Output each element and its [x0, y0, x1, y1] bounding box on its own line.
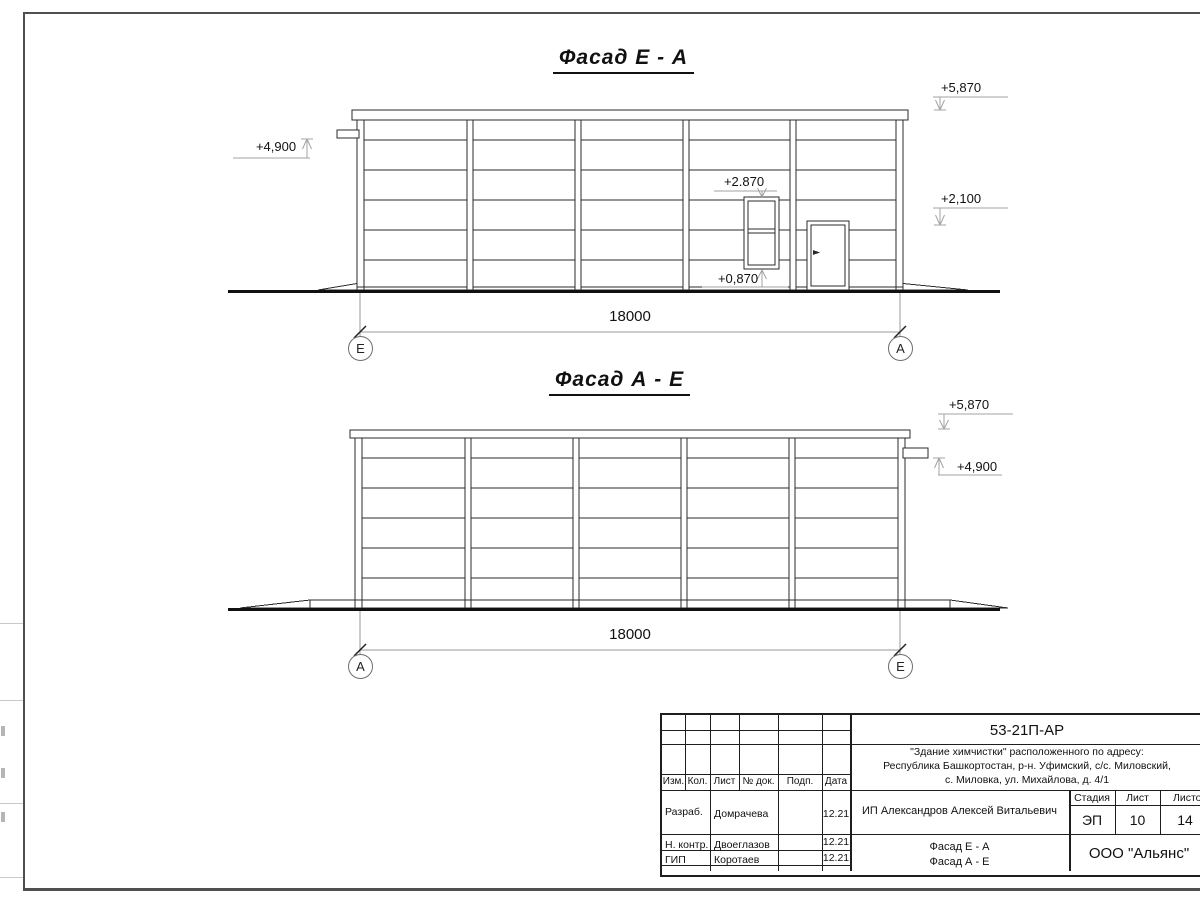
facade-ae-title: Фасад А - Е	[549, 368, 690, 396]
tb-name-ncontrol: Двоеглазов	[714, 839, 770, 851]
tb-address-line3: с. Миловка, ул. Михайлова, д. 4/1	[850, 774, 1200, 786]
title-block: Изм. Кол. Лист № док. Подп. Дата Разраб.…	[660, 713, 1200, 877]
dimension-label-facade-ea: 18000	[580, 308, 680, 325]
tb-col-list: Лист	[710, 776, 739, 787]
tb-role-developer: Разраб.	[665, 806, 703, 818]
tb-col-podp: Подп.	[778, 776, 822, 787]
tb-total-value: 14	[1160, 812, 1200, 828]
tb-address-line2: Республика Башкортостан, р-н. Уфимский, …	[850, 760, 1200, 772]
tb-sheet-label: Лист	[1115, 792, 1160, 804]
elevation-mark-canopy-ae: +4,900	[944, 459, 1010, 474]
canopy-stub	[337, 130, 359, 138]
tb-doc-number: 53-21П-АР	[850, 722, 1200, 739]
tb-stage-label: Стадия	[1069, 792, 1115, 804]
tb-company: ООО "Альянс"	[1069, 845, 1200, 862]
tb-col-izm: Изм.	[662, 776, 685, 787]
axis-bubble-ea-left: Е	[348, 336, 373, 361]
tb-sheet-title1: Фасад Е - А	[850, 841, 1069, 853]
axis-bubble-ae-right: Е	[888, 654, 913, 679]
tb-role-gip: ГИП	[665, 854, 686, 866]
drawing-sheet: Фасад Е - А Фасад А - Е 18000 18000 +5,8…	[0, 0, 1200, 900]
tb-col-kol: Кол.	[685, 776, 710, 787]
axis-bubble-ae-left: А	[348, 654, 373, 679]
tb-client: ИП Александров Алексей Витальевич	[850, 805, 1069, 817]
canopy-stub	[903, 448, 928, 458]
tb-address-line1: "Здание химчистки" расположенного по адр…	[850, 746, 1200, 758]
axis-bubble-ea-right: А	[888, 336, 913, 361]
tb-col-doc: № док.	[739, 776, 778, 787]
tb-stage-value: ЭП	[1069, 812, 1115, 828]
window	[744, 197, 779, 269]
elevation-mark-canopy-ea: +4,900	[246, 139, 306, 154]
facade-ea-title: Фасад Е - А	[553, 46, 694, 74]
elevation-mark-roof-ea: +5,870	[928, 80, 994, 95]
tb-total-label: Листов	[1160, 792, 1200, 804]
door	[807, 221, 849, 290]
tb-name-gip: Коротаев	[714, 854, 759, 866]
dimension-label-facade-ae: 18000	[580, 626, 680, 643]
tb-role-ncontrol: Н. контр.	[665, 839, 708, 851]
elevation-mark-door-top: +2,100	[928, 191, 994, 206]
tb-date-ncontrol: 12.21	[822, 836, 850, 848]
facade-ae-drawing	[240, 430, 1008, 608]
elevation-mark-window-top: +2.870	[712, 174, 776, 189]
elevation-mark-window-bottom: +0,870	[706, 271, 770, 286]
tb-name-developer: Домрачева	[714, 808, 768, 820]
tb-date-gip: 12.21	[822, 852, 850, 864]
tb-sheet-value: 10	[1115, 812, 1160, 828]
tb-sheet-title2: Фасад А - Е	[850, 856, 1069, 868]
elevation-mark-roof-ae: +5,870	[936, 397, 1002, 412]
facade-ea-drawing	[318, 110, 968, 290]
tb-col-data: Дата	[822, 776, 850, 787]
tb-date-developer: 12.21	[822, 808, 850, 820]
